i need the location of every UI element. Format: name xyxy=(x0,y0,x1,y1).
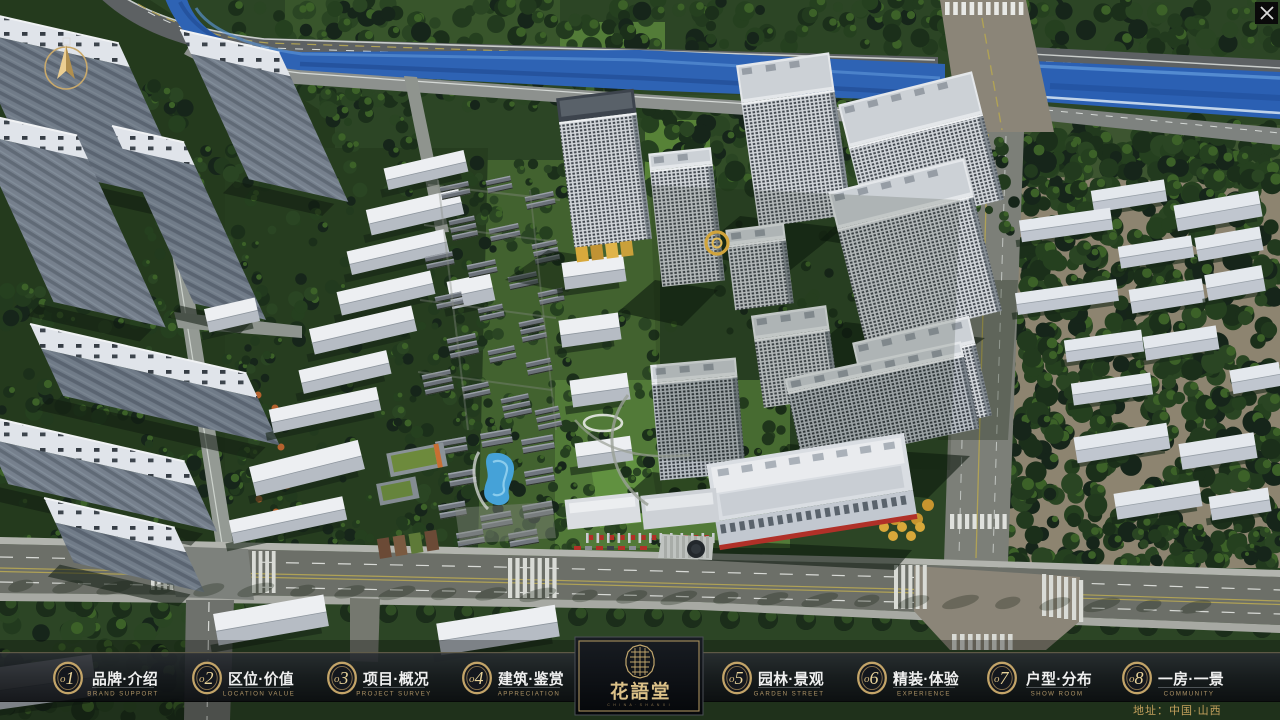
svg-text:7: 7 xyxy=(1000,668,1010,688)
svg-text:一房·一景: 一房·一景 xyxy=(1158,670,1224,688)
svg-text:1: 1 xyxy=(66,668,75,688)
svg-text:花語堂: 花語堂 xyxy=(610,681,672,703)
svg-text:LOCATION VALUE: LOCATION VALUE xyxy=(223,691,295,698)
svg-text:项目·概况: 项目·概况 xyxy=(363,670,429,688)
svg-text:区位·价值: 区位·价值 xyxy=(228,670,294,688)
svg-text:4: 4 xyxy=(475,668,484,688)
svg-text:COMMUNITY: COMMUNITY xyxy=(1164,691,1215,698)
svg-text:APPRECIATION: APPRECIATION xyxy=(498,691,560,698)
svg-text:园林·景观: 园林·景观 xyxy=(758,670,824,688)
svg-text:8: 8 xyxy=(1135,668,1144,688)
svg-text:GARDEN STREET: GARDEN STREET xyxy=(754,691,825,698)
svg-text:品牌·介绍: 品牌·介绍 xyxy=(92,670,158,688)
svg-text:5: 5 xyxy=(735,668,744,688)
svg-text:建筑·鉴赏: 建筑·鉴赏 xyxy=(498,670,564,688)
svg-text:PROJECT SURVEY: PROJECT SURVEY xyxy=(356,691,431,698)
svg-text:3: 3 xyxy=(339,668,349,688)
svg-text:BRAND SUPPORT: BRAND SUPPORT xyxy=(87,691,158,698)
svg-text:SHOW ROOM: SHOW ROOM xyxy=(1031,691,1084,698)
svg-text:C H I N A · S H A N X I: C H I N A · S H A N X I xyxy=(607,703,671,707)
svg-text:户型·分布: 户型·分布 xyxy=(1026,670,1092,688)
svg-text:EXPERIENCE: EXPERIENCE xyxy=(897,691,951,698)
svg-text:6: 6 xyxy=(870,668,879,688)
svg-text:精装·体验: 精装·体验 xyxy=(893,670,959,688)
svg-text:2: 2 xyxy=(205,668,214,688)
svg-text:地址：中国·山西: 地址：中国·山西 xyxy=(1133,703,1222,717)
